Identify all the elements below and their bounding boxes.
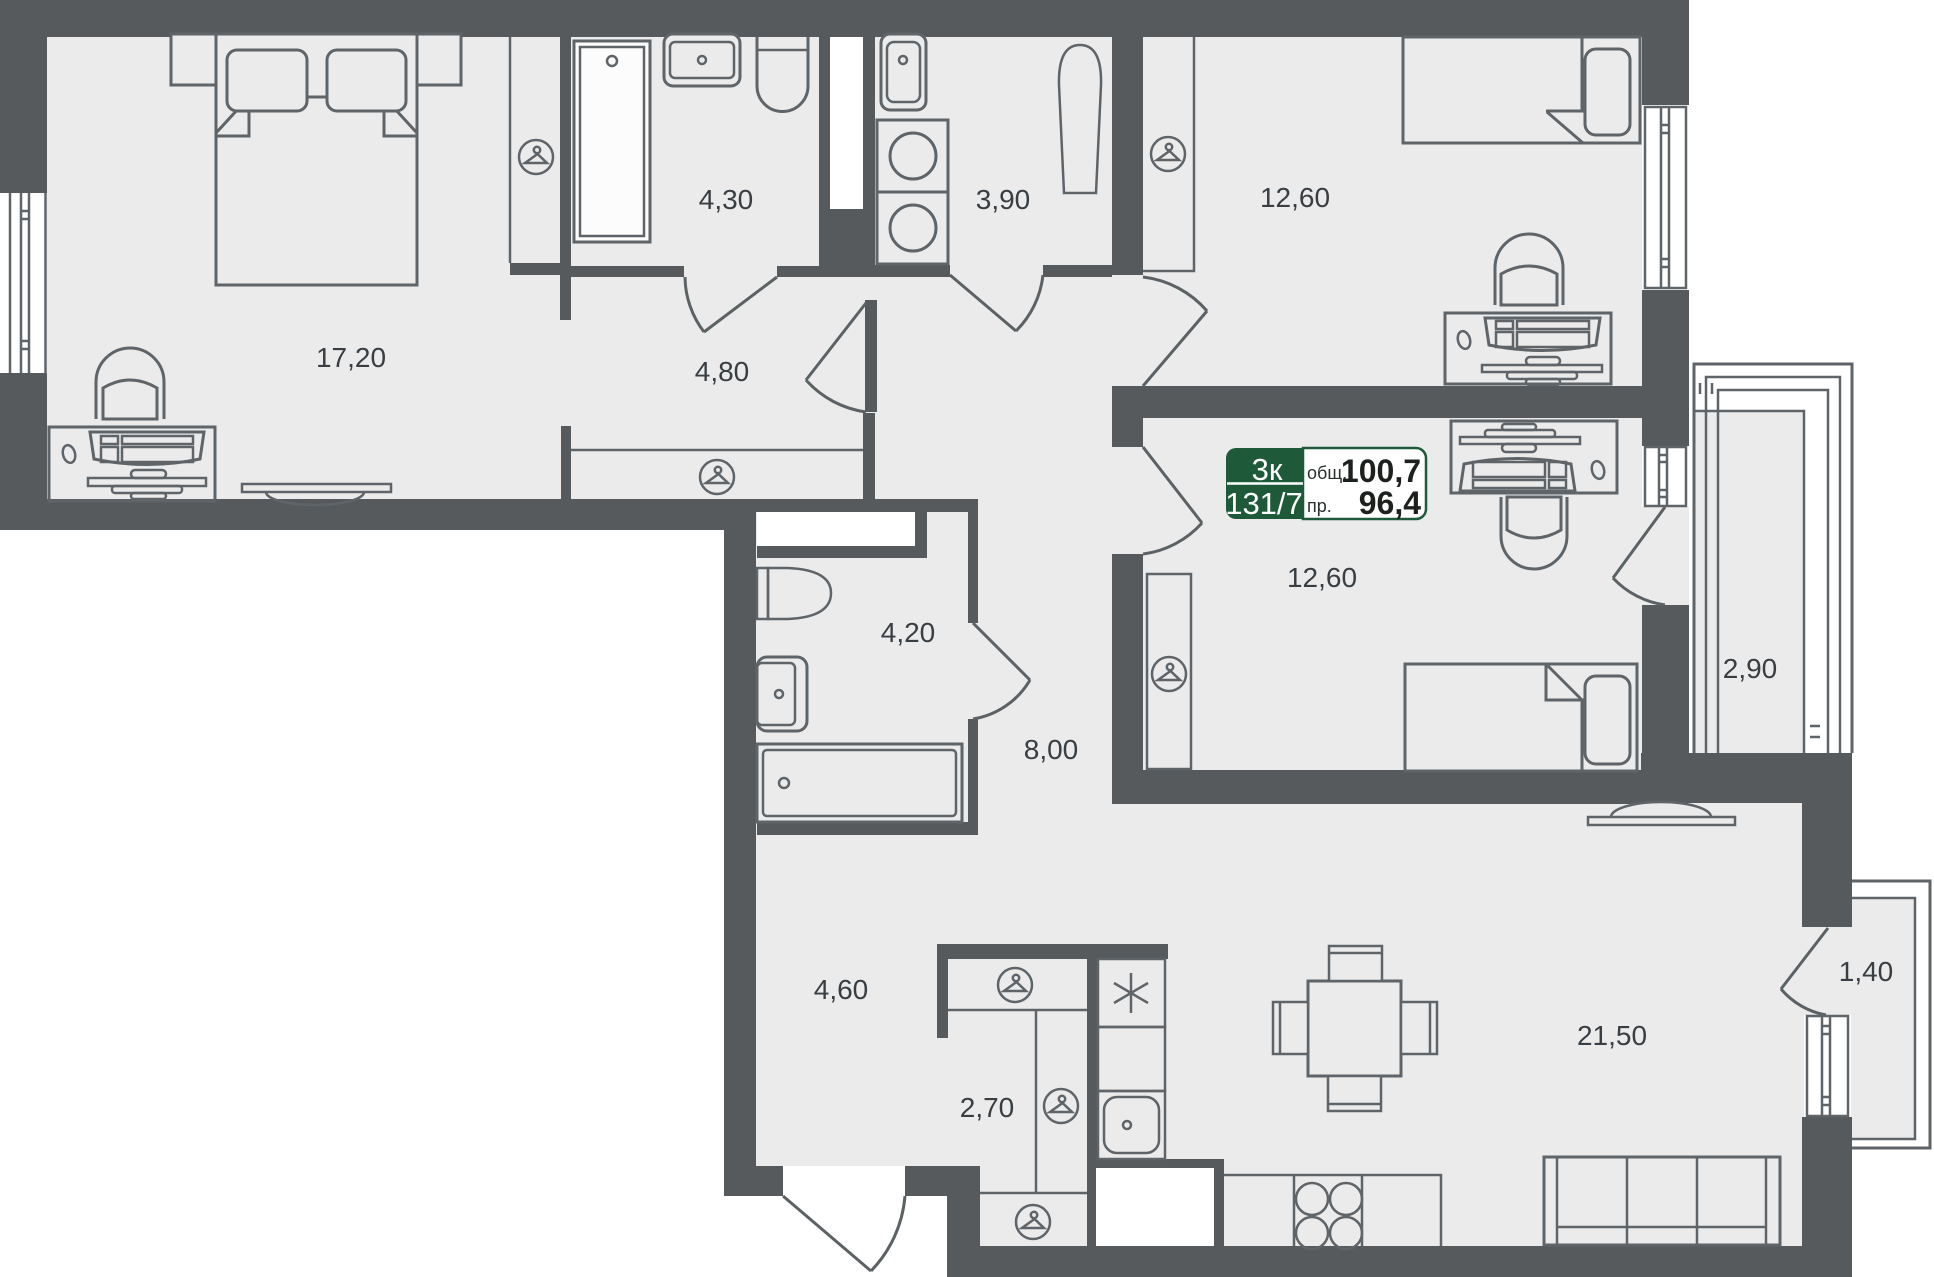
svg-text:12,60: 12,60 <box>1287 562 1357 593</box>
svg-text:3,90: 3,90 <box>976 184 1031 215</box>
svg-text:4,30: 4,30 <box>699 184 754 215</box>
svg-text:4,60: 4,60 <box>814 974 869 1005</box>
svg-text:100,7: 100,7 <box>1341 453 1421 489</box>
svg-text:12,60: 12,60 <box>1260 182 1330 213</box>
svg-text:17,20: 17,20 <box>316 342 386 373</box>
svg-text:4,80: 4,80 <box>695 356 750 387</box>
svg-text:1,40: 1,40 <box>1839 956 1894 987</box>
svg-text:131/7: 131/7 <box>1225 486 1303 521</box>
svg-text:2,70: 2,70 <box>960 1092 1015 1123</box>
svg-text:2,90: 2,90 <box>1723 653 1778 684</box>
svg-text:21,50: 21,50 <box>1577 1020 1647 1051</box>
svg-text:8,00: 8,00 <box>1024 734 1079 765</box>
svg-text:3к: 3к <box>1252 452 1283 487</box>
svg-text:4,20: 4,20 <box>881 617 936 648</box>
svg-text:пр.: пр. <box>1307 496 1332 516</box>
svg-text:96,4: 96,4 <box>1359 485 1421 521</box>
